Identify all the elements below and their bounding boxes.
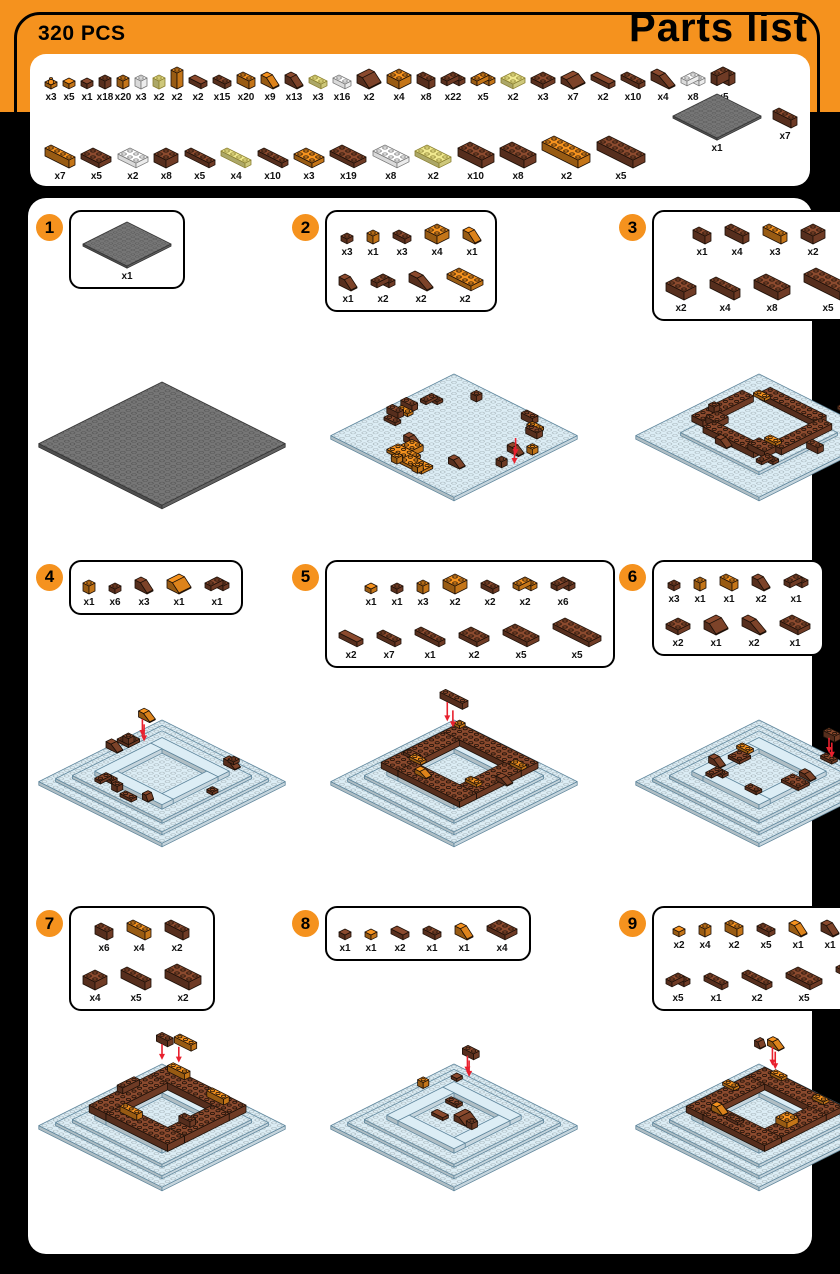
- part-4x1-bn: x5: [118, 960, 154, 1004]
- part-qty: x15: [214, 93, 231, 103]
- brick-icon: [364, 223, 382, 247]
- brick-icon: [783, 960, 825, 993]
- step-parts-row: x4x5x2: [80, 957, 204, 1004]
- part-corner-or: x2: [510, 570, 540, 608]
- part-qty: x10: [467, 172, 484, 182]
- part-qty: x6: [557, 598, 568, 608]
- step-5: 5x1x1x3x2x2x2x6x2x7x1x2x5x5: [290, 556, 617, 903]
- part-qty: x3: [769, 248, 780, 258]
- brick-icon: [500, 617, 542, 650]
- brick-icon: [548, 570, 578, 597]
- part-qty: x1: [83, 598, 94, 608]
- step-header: 9x2x4x2x5x1x1x1x5x1x2x5x1: [619, 906, 840, 1011]
- part-qty: x2: [449, 598, 460, 608]
- part-qty: x3: [341, 248, 352, 258]
- part-qty: x3: [138, 598, 149, 608]
- part-qty: x1: [710, 994, 721, 1004]
- part-4x1-bn: x4: [707, 270, 743, 314]
- part-1x1-or: x4: [696, 916, 714, 951]
- part-slope-or: x1: [460, 220, 484, 258]
- part-qty: x2: [153, 93, 164, 103]
- part-3x1p-bn: x1: [701, 966, 731, 1004]
- brick-icon: [406, 264, 436, 294]
- part-3x1t-bn: x2: [588, 67, 618, 103]
- part-2x6-bn: x5: [594, 129, 648, 182]
- part-qty: x20: [238, 93, 255, 103]
- part-2x1-or: x2: [722, 913, 746, 951]
- part-qty: x3: [303, 172, 314, 182]
- step-parts-row: x1: [80, 217, 174, 282]
- brick-icon: [663, 966, 693, 993]
- step-number-badge: 7: [36, 910, 63, 937]
- brick-icon: [701, 966, 731, 993]
- brick-icon: [354, 62, 384, 92]
- brick-icon: [132, 570, 156, 597]
- brick-icon: [594, 129, 648, 171]
- part-qty: x2: [363, 93, 374, 103]
- part-qty: x2: [672, 639, 683, 649]
- step-number-badge: 5: [292, 564, 319, 591]
- part-3x1-bn: x7: [770, 101, 800, 142]
- part-qty: x2: [394, 944, 405, 954]
- part-qty: x5: [91, 172, 102, 182]
- brick-icon: [412, 620, 448, 650]
- part-2x3p-or: x3: [291, 141, 327, 182]
- part-qty: x3: [537, 93, 548, 103]
- part-qty: x2: [428, 172, 439, 182]
- part-qty: x3: [417, 598, 428, 608]
- step-assembly-diagram: [292, 324, 615, 552]
- brick-icon: [497, 135, 539, 171]
- part-2x3-bn: x2: [663, 270, 699, 314]
- part-qty: x5: [672, 994, 683, 1004]
- brick-icon: [151, 141, 181, 171]
- step-parts-row: x6x4x2: [80, 913, 204, 954]
- part-4x1p-bn: x1: [412, 620, 448, 661]
- brick-icon: [510, 570, 540, 597]
- part-qty: x4: [699, 941, 710, 951]
- brick-icon: [162, 913, 192, 943]
- part-qty: x2: [597, 93, 608, 103]
- brick-icon: [42, 138, 78, 171]
- part-qty: x4: [393, 93, 404, 103]
- brick-icon: [327, 138, 369, 171]
- brick-icon: [420, 919, 444, 943]
- part-cornerp-bn: x1: [202, 570, 232, 608]
- part-qty: x1: [694, 595, 705, 605]
- part-qty: x3: [312, 93, 323, 103]
- part-qty: x2: [807, 248, 818, 258]
- brick-icon: [390, 223, 414, 247]
- step-3: 3x1x4x3x2x2x4x8x5: [617, 206, 840, 556]
- part-qty: x22: [445, 93, 462, 103]
- brick-icon: [670, 89, 764, 143]
- part-qty: x1: [723, 595, 734, 605]
- brick-icon: [663, 611, 693, 638]
- part-1x1t-or: x5: [60, 73, 78, 103]
- step-assembly-diagram: [36, 1014, 288, 1242]
- brick-icon: [80, 217, 174, 271]
- part-corner-bn: x2: [368, 267, 398, 305]
- part-slope-bn: x1: [818, 913, 840, 951]
- brick-icon: [78, 73, 96, 92]
- part-qty: x1: [824, 941, 835, 951]
- brick-icon: [182, 141, 218, 171]
- brick-icon: [754, 916, 778, 940]
- part-base-gr: x1: [80, 217, 174, 282]
- part-2x2-bn: x8: [151, 141, 181, 182]
- part-qty: x1: [365, 944, 376, 954]
- part-qty: x1: [466, 248, 477, 258]
- part-2x1-or: x20: [234, 65, 258, 103]
- brick-icon: [478, 573, 502, 597]
- part-4x1-or: x7: [42, 138, 78, 182]
- step-parts-row: x3x1x3x4x1: [336, 217, 486, 258]
- brick-icon: [124, 913, 154, 943]
- part-qty: x4: [496, 944, 507, 954]
- part-1x1-or: x20: [114, 68, 132, 103]
- part-qty: x1: [365, 598, 376, 608]
- brick-icon: [330, 68, 354, 92]
- part-qty: x8: [420, 93, 431, 103]
- part-1x1t-or: x1: [362, 924, 380, 954]
- brick-icon: [760, 217, 790, 247]
- part-slope-or: x1: [786, 913, 810, 951]
- step-parts-row: x1x4x3x2: [663, 217, 840, 258]
- step-number-badge: 1: [36, 214, 63, 241]
- part-2x2p-bn: x3: [528, 65, 558, 103]
- step-7: 7x6x4x2x4x5x2: [34, 902, 290, 1246]
- part-qty: x4: [431, 248, 442, 258]
- step-assembly-diagram: [36, 670, 288, 898]
- part-qty: x1: [173, 598, 184, 608]
- part-corner-or: x5: [468, 65, 498, 103]
- part-2x1-bn: x6: [92, 916, 116, 954]
- brick-icon: [528, 65, 558, 92]
- part-qty: x4: [133, 944, 144, 954]
- part-qty: x2: [561, 172, 572, 182]
- part-qty: x1: [211, 598, 222, 608]
- brick-icon: [440, 567, 470, 597]
- brick-icon: [412, 138, 454, 171]
- part-qty: x2: [345, 651, 356, 661]
- step-parts-row: x1x2x2x2: [336, 261, 486, 305]
- brick-icon: [722, 217, 752, 247]
- step-parts-row: x2x7x1x2x5x5: [336, 611, 604, 661]
- part-qty: x5: [194, 172, 205, 182]
- step-parts-row: x3x1x1x2x1: [663, 567, 813, 605]
- part-qty: x2: [177, 994, 188, 1004]
- part-qty: x8: [766, 304, 777, 314]
- step-1: 1x1: [34, 206, 290, 556]
- part-2x1p-wh: x16: [330, 68, 354, 103]
- part-1x1p-bn: x1: [388, 576, 406, 608]
- part-2x1-bn: x1: [690, 220, 714, 258]
- brick-icon: [717, 567, 741, 594]
- part-slope2-bn: x1: [701, 608, 731, 649]
- part-qty: x5: [571, 651, 582, 661]
- part-4x1p-bn: x10: [255, 141, 291, 182]
- brick-icon: [362, 924, 380, 943]
- step-parts-box: x1x1x2x1x1x4: [325, 906, 531, 961]
- part-1x1-bn: x18: [96, 68, 114, 103]
- part-2x1t-bn: x2: [388, 921, 412, 954]
- part-qty: x5: [615, 172, 626, 182]
- brick-icon: [80, 573, 98, 597]
- brick-icon: [118, 960, 154, 993]
- brick-icon: [218, 141, 254, 171]
- brick-icon: [751, 267, 793, 303]
- part-2x4-bn: x8: [497, 135, 539, 182]
- brick-icon: [696, 916, 714, 940]
- brick-icon: [210, 68, 234, 92]
- part-2x4p-wh: x8: [370, 138, 412, 182]
- part-3x1p-bn: x7: [374, 623, 404, 661]
- step-parts-row: x1x1x2x1x1x4: [336, 913, 520, 954]
- part-qty: x6: [98, 944, 109, 954]
- part-4x1p-bn: x5: [182, 141, 218, 182]
- step-number-badge: 2: [292, 214, 319, 241]
- part-slope-bn: x3: [132, 570, 156, 608]
- part-qty: x5: [63, 93, 74, 103]
- part-qty: x7: [779, 132, 790, 142]
- parts-list-row-2: x7x5x2x8x5x4x10x3x19x8x2x10x8x2x5: [42, 129, 648, 182]
- brick-icon: [132, 68, 150, 92]
- step-header: 6x3x1x1x2x1x2x1x2x1: [619, 560, 840, 656]
- step-parts-box: x6x4x2x4x5x2: [69, 906, 215, 1011]
- brick-icon: [749, 567, 773, 594]
- brick-icon: [234, 65, 258, 92]
- part-1x1p-bn: x3: [338, 226, 356, 258]
- step-parts-box: x1x1x3x2x2x2x6x2x7x1x2x5x5: [325, 560, 615, 668]
- brick-icon: [777, 608, 813, 638]
- step-header: 1x1: [36, 210, 288, 289]
- step-parts-row: x5x1x2x5x1: [663, 954, 840, 1004]
- brick-icon: [258, 65, 282, 92]
- step-parts-box: x1x6x3x1x1: [69, 560, 243, 615]
- part-qty: x18: [97, 93, 114, 103]
- instructions-panel: 1x12x3x1x3x4x1x1x2x2x23x1x4x3x2x2x4x8x54…: [28, 198, 812, 1254]
- part-slope-or: x1: [452, 916, 476, 954]
- part-qty: x3: [135, 93, 146, 103]
- part-qty: x1: [710, 639, 721, 649]
- brick-icon: [374, 623, 404, 650]
- brick-icon: [80, 963, 110, 993]
- brick-icon: [162, 957, 204, 993]
- part-2x2-or: x4: [384, 62, 414, 103]
- brick-icon: [722, 913, 746, 940]
- part-2x6-or: x2: [539, 129, 593, 182]
- brick-icon: [739, 963, 775, 993]
- brick-icon: [670, 921, 688, 940]
- part-qty: x1: [121, 272, 132, 282]
- part-qty: x2: [377, 295, 388, 305]
- part-qty: x7: [383, 651, 394, 661]
- brick-icon: [114, 68, 132, 92]
- part-2x4-bn: x10: [455, 135, 497, 182]
- step-parts-box: x3x1x3x4x1x1x2x2x2: [325, 210, 497, 312]
- part-qty: x2: [468, 651, 479, 661]
- part-2x4p-bn: x19: [327, 138, 369, 182]
- part-qty: x1: [458, 944, 469, 954]
- brick-icon: [550, 611, 604, 650]
- step-assembly-diagram: [292, 670, 615, 898]
- part-2x2-or: x4: [422, 217, 452, 258]
- step-number-badge: 4: [36, 564, 63, 591]
- part-qty: x8: [385, 172, 396, 182]
- part-slope3-bn: x2: [406, 264, 436, 305]
- brick-icon: [691, 570, 709, 594]
- part-qty: x8: [161, 172, 172, 182]
- brick-icon: [438, 65, 468, 92]
- part-qty: x1: [391, 598, 402, 608]
- part-qty: x1: [792, 941, 803, 951]
- part-qty: x1: [424, 651, 435, 661]
- part-qty: x1: [711, 144, 722, 154]
- part-cone-or: x3: [42, 68, 60, 103]
- part-qty: x19: [340, 172, 357, 182]
- brick-icon: [801, 261, 840, 303]
- part-1x1t-or: x1: [362, 578, 380, 608]
- part-2x1p-bn: x3: [390, 223, 414, 258]
- brick-icon: [414, 65, 438, 92]
- step-parts-row: x1x6x3x1x1: [80, 567, 232, 608]
- part-2x1-or: x1: [717, 567, 741, 605]
- brick-icon: [558, 64, 588, 92]
- step-9: 9x2x4x2x5x1x1x1x5x1x2x5x1: [617, 902, 840, 1246]
- part-qty: x4: [719, 304, 730, 314]
- step-assembly-diagram: [619, 670, 840, 898]
- part-2x3p-bn: x5: [78, 141, 114, 182]
- part-2x4-bn: x8: [751, 267, 793, 314]
- part-qty: x5: [798, 994, 809, 1004]
- part-1x1-wh: x3: [132, 68, 150, 103]
- brick-icon: [384, 62, 414, 92]
- part-2x1p-bn: x15: [210, 68, 234, 103]
- brick-icon: [618, 65, 648, 92]
- part-slope2-or: x1: [164, 567, 194, 608]
- brick-icon: [468, 65, 498, 92]
- part-qty: x2: [675, 304, 686, 314]
- part-qty: x5: [822, 304, 833, 314]
- step-assembly-diagram: [36, 324, 288, 552]
- page-title: Parts list: [629, 6, 808, 51]
- part-2x2-bn: x2: [798, 217, 828, 258]
- brick-icon: [818, 913, 840, 940]
- brick-icon: [388, 921, 412, 943]
- part-2x4p-or: x2: [444, 261, 486, 305]
- step-6: 6x3x1x1x2x1x2x1x2x1: [617, 556, 840, 903]
- part-3x1t-bn: x2: [336, 625, 366, 661]
- brick-icon: [786, 913, 810, 940]
- part-corner-bn: x22: [438, 65, 468, 103]
- part-2x4p-bn: x5: [500, 617, 542, 661]
- part-qty: x4: [231, 172, 242, 182]
- part-qty: x2: [519, 598, 530, 608]
- part-qty: x5: [515, 651, 526, 661]
- parts-list-baseplate-area: x1x7: [648, 60, 800, 182]
- step-number-badge: 6: [619, 564, 646, 591]
- brick-icon: [739, 608, 769, 638]
- part-1x1-or: x1: [364, 223, 382, 258]
- brick-icon: [798, 217, 828, 247]
- brick-icon: [106, 576, 124, 597]
- part-corner-bn: x5: [663, 966, 693, 1004]
- brick-icon: [388, 576, 406, 597]
- part-qty: x20: [115, 93, 132, 103]
- part-2x1p-bn: x5: [754, 916, 778, 951]
- part-qty: x5: [760, 941, 771, 951]
- step-8: 8x1x1x2x1x1x4: [290, 902, 617, 1246]
- brick-icon: [444, 261, 486, 294]
- brick-icon: [498, 65, 528, 92]
- step-header: 3x1x4x3x2x2x4x8x5: [619, 210, 840, 321]
- brick-icon: [456, 620, 492, 650]
- part-qty: x4: [89, 994, 100, 1004]
- part-qty: x2: [728, 941, 739, 951]
- part-1x1p-bn: x6: [106, 576, 124, 608]
- brick-icon: [414, 573, 432, 597]
- part-2x1-bn: x8: [414, 65, 438, 103]
- part-3x1-or: x3: [760, 217, 790, 258]
- parts-list-rows: x3x5x1x18x20x3x2x2x2x15x20x9x13x3x16x2x4…: [42, 60, 648, 182]
- part-2x3p-bn: x4: [484, 913, 520, 954]
- step-header: 2x3x1x3x4x1x1x2x2x2: [292, 210, 615, 312]
- brick-icon: [291, 141, 327, 171]
- part-qty: x1: [790, 595, 801, 605]
- part-qty: x2: [415, 295, 426, 305]
- brick-icon: [42, 68, 60, 92]
- part-qty: x3: [45, 93, 56, 103]
- part-qty: x5: [130, 994, 141, 1004]
- part-slope-bn: x1: [336, 267, 360, 305]
- brick-icon: [770, 101, 800, 131]
- part-2x1p-bn: x1: [420, 919, 444, 954]
- step-4: 4x1x6x3x1x1: [34, 556, 290, 903]
- part-3x1p-bn: x10: [618, 65, 648, 103]
- part-qty: x6: [109, 598, 120, 608]
- part-qty: x2: [751, 994, 762, 1004]
- part-qty: x2: [171, 944, 182, 954]
- step-number-badge: 9: [619, 910, 646, 937]
- part-2x3p-wh: x2: [115, 141, 151, 182]
- part-slope3-bn: x2: [739, 608, 769, 649]
- brick-icon: [665, 573, 683, 594]
- brick-icon: [168, 60, 186, 92]
- step-header: 4x1x6x3x1x1: [36, 560, 288, 615]
- part-qty: x2: [484, 598, 495, 608]
- part-1x1-or: x1: [80, 573, 98, 608]
- part-slope-bn: x13: [282, 65, 306, 103]
- part-qty: x1: [696, 248, 707, 258]
- part-qty: x2: [673, 941, 684, 951]
- step-parts-row: x1x1x3x2x2x2x6: [336, 567, 604, 608]
- part-slope2x2-bn: x7: [558, 64, 588, 103]
- part-2x6p-bn: x5: [550, 611, 604, 661]
- part-qty: x16: [334, 93, 351, 103]
- part-2x2-bn: x4: [80, 963, 110, 1004]
- step-header: 7x6x4x2x4x5x2: [36, 906, 288, 1011]
- part-corner-bn: x6: [548, 570, 578, 608]
- part-2x4-bn: x2: [162, 957, 204, 1004]
- part-2x4p-bn: x5: [783, 960, 825, 1004]
- step-header: 5x1x1x3x2x2x2x6x2x7x1x2x5x5: [292, 560, 615, 668]
- part-2x2-or: x2: [440, 567, 470, 608]
- part-qty: x2: [171, 93, 182, 103]
- step-parts-row: x2x4x2x5x1x1x1: [663, 913, 840, 951]
- brick-icon: [186, 70, 210, 92]
- part-2x3p-bn: x2: [456, 620, 492, 661]
